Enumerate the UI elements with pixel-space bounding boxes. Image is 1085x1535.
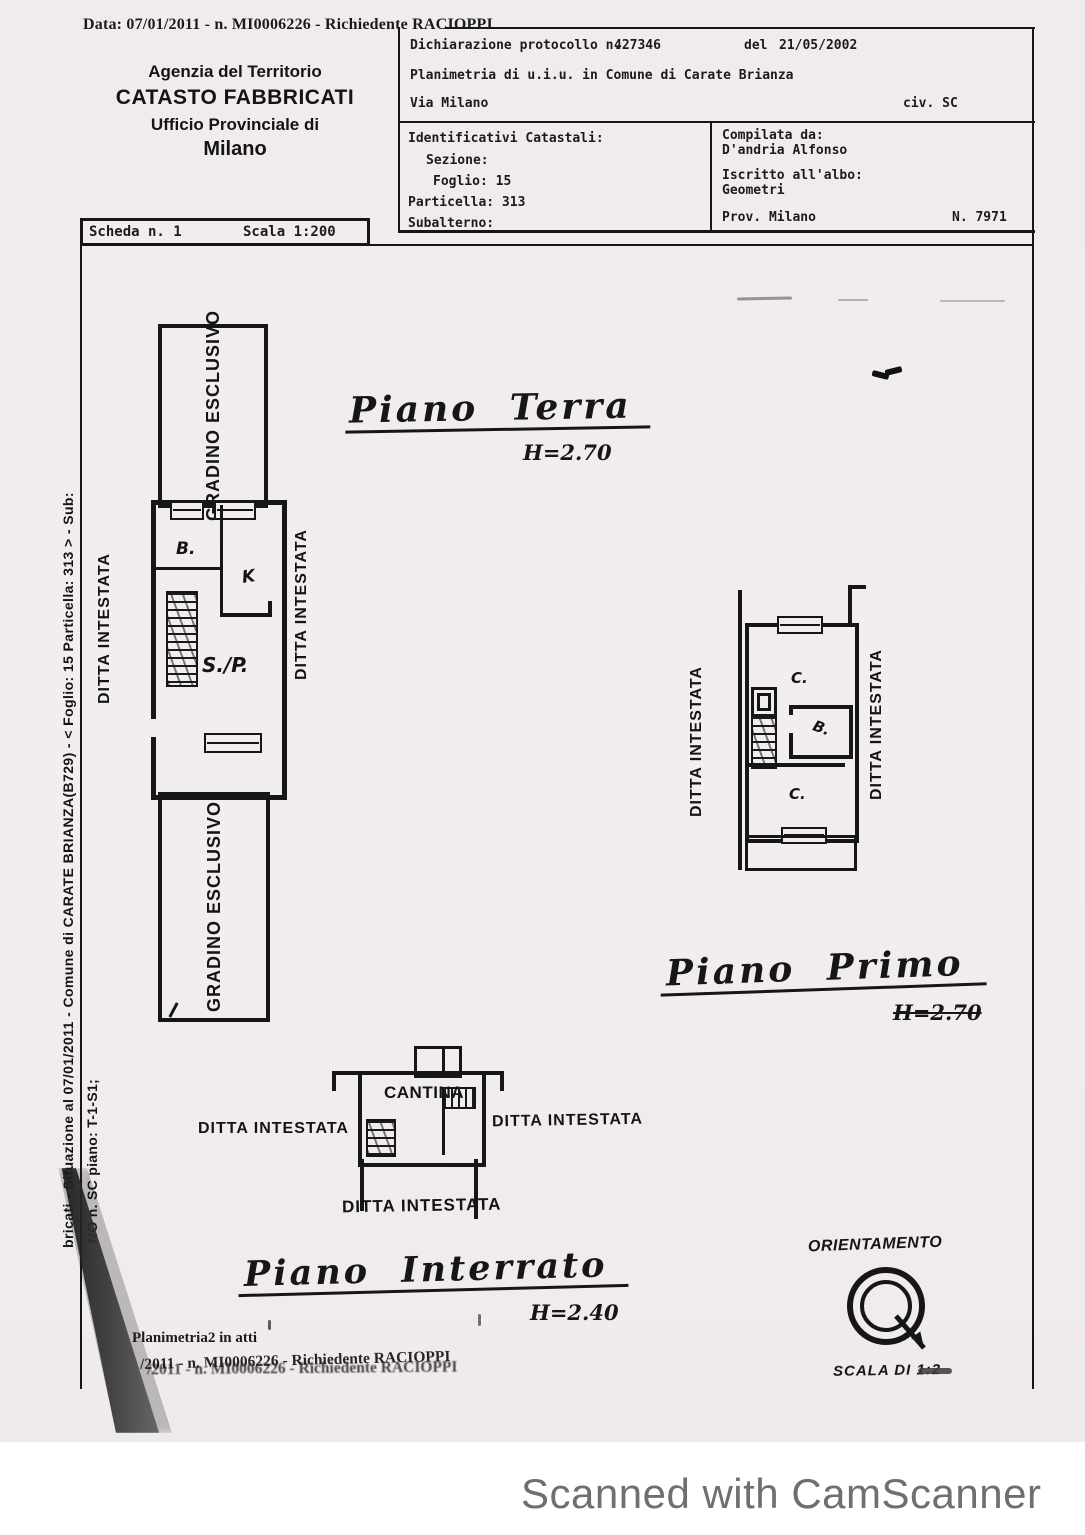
scanned-cadastral-document: Data: 07/01/2011 - n. MI0006226 - Richie… — [0, 0, 1085, 1535]
door-opening — [787, 715, 793, 733]
planimetria-atti-line: Planimetria2 in atti — [132, 1330, 257, 1347]
protocol-label: Dichiarazione protocollo n. — [410, 38, 621, 53]
cantina-room: CANTINA — [358, 1071, 486, 1167]
scheda-scala: Scala 1:200 — [243, 224, 336, 240]
wall-segment — [442, 1103, 445, 1155]
document-date-line: Data: 07/01/2011 - n. MI0006226 - Richie… — [83, 16, 493, 34]
piano-terra-height: H=2.70 — [523, 440, 612, 465]
street-line: Via Milano — [410, 96, 488, 111]
wall-segment — [220, 613, 272, 617]
smudge-mark — [918, 1368, 952, 1374]
wall-segment — [848, 585, 852, 627]
wall-segment — [332, 1071, 336, 1091]
stairs-hatch — [366, 1119, 396, 1157]
gradino-strip-top: GRADINO ESCLUSIVO — [158, 324, 268, 508]
piano-terra-title: Piano Terra — [345, 387, 650, 433]
ditta-intestata-label: DITTA INTESTATA — [96, 542, 114, 704]
agency-city: Milano — [85, 138, 385, 161]
closet-block — [751, 687, 777, 717]
agency-block: Agenzia del Territorio CATASTO FABBRICAT… — [85, 62, 385, 161]
scan-speck — [478, 1314, 481, 1326]
rule-line — [445, 27, 1035, 29]
scan-speck — [940, 300, 1005, 302]
foglio-field: Foglio: 15 — [433, 174, 511, 189]
subalterno-field: Subalterno: — [408, 216, 494, 231]
ditta-intestata-label: DITTA INTESTATA — [492, 1111, 643, 1132]
gradino-label: GRADINO ESCLUSIVO — [203, 310, 224, 521]
door-opening — [450, 1153, 472, 1161]
room-bagno-label: B. — [176, 539, 195, 559]
civ-number: civ. SC — [903, 96, 958, 111]
gradino-strip-bottom: GRADINO ESCLUSIVO — [158, 792, 270, 1022]
ghost-request-line: /2011 - n. MI0006226 - Richiedente RACIO… — [147, 1359, 458, 1380]
scan-speck — [838, 299, 868, 301]
camscanner-strip: Scanned with CamScanner — [0, 1442, 1085, 1535]
balcony-strip — [745, 835, 857, 871]
room-camera-label: C. — [791, 669, 808, 687]
wall-segment — [332, 1071, 360, 1075]
frame-top — [80, 244, 1033, 246]
scheda-box: Scheda n. 1 Scala 1:200 — [80, 218, 370, 246]
prov-field: Prov. Milano — [722, 210, 816, 225]
margin-situation-text: bricati - Situazione al 07/01/2011 - Com… — [60, 430, 76, 1248]
wall-segment — [738, 590, 742, 870]
ditta-intestata-label: DITTA INTESTATA — [293, 528, 311, 680]
window-opening — [777, 616, 823, 634]
wall-segment — [220, 505, 223, 617]
wall-segment — [500, 1071, 504, 1091]
gradino-label: GRADINO ESCLUSIVO — [204, 801, 225, 1012]
room-soggiorno-label: S./P. — [202, 653, 248, 677]
room-camera-label: C. — [789, 785, 806, 803]
wall-segment — [749, 763, 845, 767]
albo-value: Geometri — [722, 183, 785, 198]
albo-number: N. 7971 — [952, 210, 1007, 225]
agency-office: Ufficio Provinciale di — [85, 115, 385, 135]
protocol-del: del — [744, 38, 767, 53]
camscanner-watermark: Scanned with CamScanner — [521, 1470, 1041, 1518]
terra-unit: B. K S./P. — [151, 500, 287, 800]
ditta-intestata-label: DITTA INTESTATA — [342, 1195, 502, 1218]
window-opening — [170, 501, 204, 520]
ditta-intestata-label: DITTA INTESTATA — [198, 1120, 349, 1138]
ditta-intestata-label: DITTA INTESTATA — [688, 662, 706, 817]
agency-line: Agenzia del Territorio — [85, 62, 385, 82]
identificativi-title: Identificativi Catastali: — [408, 131, 604, 146]
sezione-field: Sezione: — [426, 153, 489, 168]
ditta-intestata-label: DITTA INTESTATA — [868, 648, 886, 800]
wall-segment — [848, 585, 866, 589]
window-opening — [204, 733, 262, 753]
piano-primo-height: H=2.70 — [893, 1000, 982, 1025]
particella-field: Particella: 313 — [408, 195, 525, 210]
compass-icon — [840, 1258, 940, 1368]
protocol-date: 21/05/2002 — [779, 38, 857, 53]
wall-segment — [156, 567, 220, 570]
box-border — [710, 121, 712, 233]
shelf-hatch — [442, 1087, 476, 1109]
door-opening — [150, 719, 158, 737]
compilata-name: D'andria Alfonso — [722, 143, 847, 158]
piano-interrato-height: H=2.40 — [530, 1300, 619, 1325]
frame-right — [1032, 27, 1034, 1389]
stairs-hatch — [166, 591, 198, 687]
wall-segment — [268, 601, 272, 617]
room-kitchen-label: K — [241, 566, 257, 588]
protocol-number: 427346 — [614, 38, 661, 53]
albo-label: Iscritto all'albo: — [722, 168, 863, 183]
threshold-notch — [174, 1008, 198, 1018]
scheda-number: Scheda n. 1 — [89, 224, 182, 240]
compilata-title: Compilata da: — [722, 128, 824, 143]
box-border — [398, 27, 400, 233]
planimetria-line: Planimetria di u.i.u. in Comune di Carat… — [410, 68, 794, 83]
scan-speck — [268, 1320, 271, 1330]
agency-name: CATASTO FABBRICATI — [85, 86, 385, 110]
stairs-hatch — [751, 715, 777, 769]
primo-unit: C. B. C. — [745, 623, 859, 843]
box-border — [398, 121, 1035, 123]
